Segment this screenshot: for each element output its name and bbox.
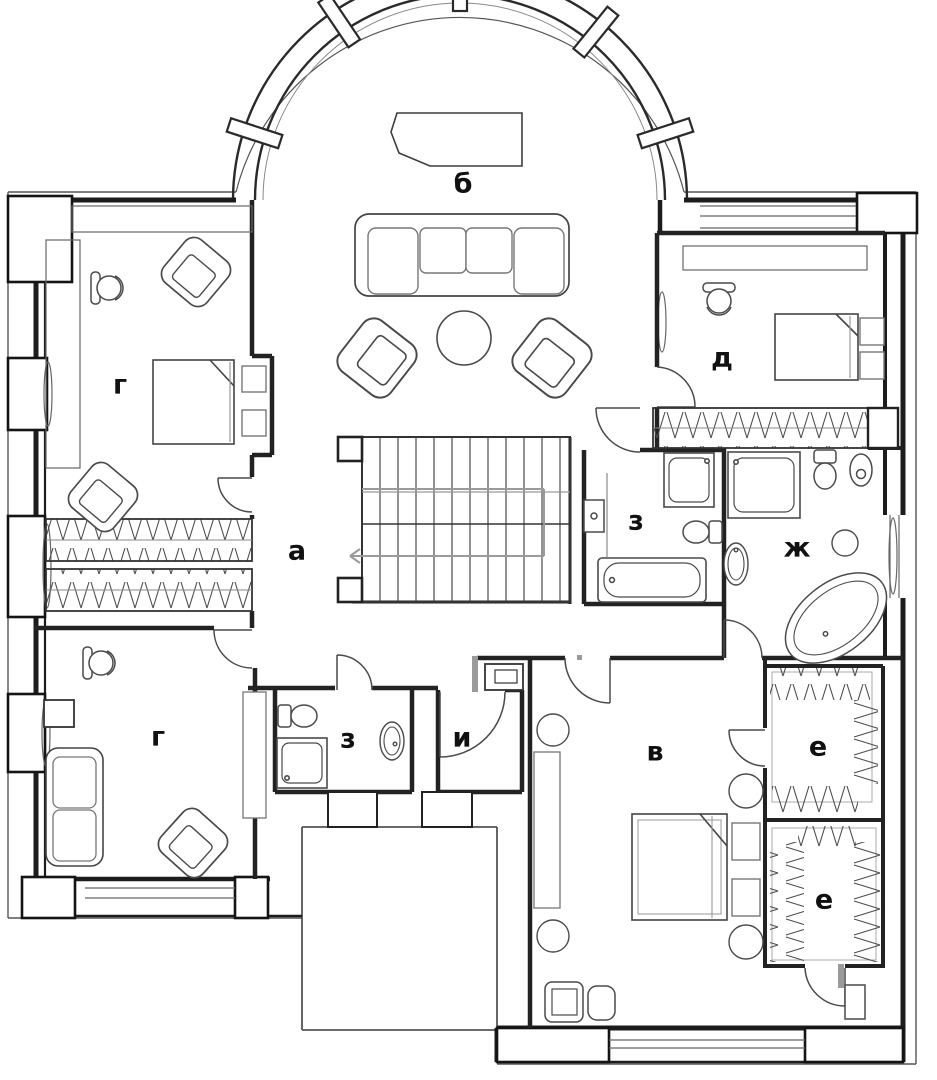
- door-utility: [440, 692, 505, 757]
- nightstand-icon: [732, 823, 760, 860]
- sofa-icon: [355, 214, 569, 296]
- armchair-icon: [153, 803, 232, 882]
- desk-chair-icon: [91, 272, 123, 304]
- dresser-icon: [534, 752, 560, 908]
- radiator-icon: [44, 700, 74, 727]
- room-label-bedroom-bl: г: [151, 724, 165, 751]
- nightstand-icon: [860, 318, 884, 345]
- stair-newel: [338, 578, 362, 602]
- desk-chair-icon: [703, 283, 735, 315]
- shower-icon: [728, 452, 800, 518]
- shower-icon: [664, 453, 714, 507]
- room-label-bath-bottom: з: [340, 726, 356, 753]
- bathtub-icon: [598, 558, 706, 602]
- nightstand-icon: [860, 352, 884, 379]
- side-table-icon: [729, 774, 763, 808]
- sink-icon: [380, 722, 404, 760]
- bedroom-bottom-left-furniture: [44, 647, 266, 883]
- desk-chair-icon: [83, 647, 115, 679]
- door-closet-top: [729, 730, 765, 766]
- room-label-closet-bottom: е: [815, 887, 833, 914]
- pedestal-sink-icon: [724, 543, 748, 585]
- nightstand-icon: [242, 366, 266, 392]
- armchair-icon: [332, 313, 422, 403]
- room-label-utility: и: [453, 725, 472, 752]
- bed-icon: [153, 360, 234, 444]
- stool-icon: [537, 714, 569, 746]
- side-table-icon: [729, 925, 763, 959]
- room-label-closet-top: е: [809, 734, 827, 761]
- door-bedroom-bottom-right: [565, 658, 610, 703]
- shower-icon: [277, 738, 327, 788]
- room-label-hallway: а: [288, 538, 306, 565]
- living-room-furniture: [332, 113, 597, 403]
- wardrobe-hatch-strip: [46, 519, 252, 561]
- armchair-icon: [507, 313, 597, 403]
- toilet-icon: [683, 521, 722, 543]
- bathroom-center-fixtures: [584, 453, 722, 602]
- toilet-icon: [814, 450, 836, 489]
- room-label-bath-right: ж: [784, 535, 811, 562]
- bathroom-right-fixtures: [724, 450, 903, 681]
- bed-icon: [632, 814, 727, 920]
- door-bedroom-top-right: [657, 367, 695, 407]
- room-label-living: б: [454, 171, 473, 198]
- nightstand-icon: [732, 879, 760, 916]
- floor-plan: б г а д з ж г з и в е е: [0, 0, 937, 1080]
- armchair-icon: [157, 233, 236, 312]
- bed-icon: [775, 314, 858, 380]
- cabinet-icon: [845, 985, 865, 1019]
- nightstand-icon: [242, 410, 266, 436]
- coffee-table-icon: [437, 311, 491, 365]
- toilet-icon: [278, 705, 317, 727]
- stair-direction-arrow: [350, 489, 544, 563]
- stool-icon: [832, 530, 858, 556]
- vanity-icon: [584, 500, 604, 532]
- bedroom-top-left-furniture: [46, 206, 266, 536]
- stool-icon: [537, 920, 569, 952]
- stair-newel: [338, 437, 362, 461]
- bidet-icon: [850, 454, 872, 486]
- door-bathroom-right: [724, 620, 762, 658]
- desk-icon: [683, 246, 867, 270]
- room-label-bedroom-tr: д: [711, 345, 733, 372]
- door-bedroom-top-left: [218, 478, 252, 512]
- sofa-icon: [46, 748, 103, 866]
- room-label-bedroom-tl: г: [113, 372, 127, 399]
- wardrobe-hatch-strip: [653, 408, 898, 448]
- cabinet-icon: [485, 664, 523, 690]
- door-bathroom-bottom: [337, 655, 372, 690]
- door-bathroom-center: [596, 408, 640, 452]
- cabinet-icon: [243, 692, 266, 818]
- utility-room-fixtures: [485, 664, 523, 690]
- room-label-bedroom-br: в: [646, 739, 663, 766]
- staircase: [338, 437, 570, 602]
- door-bedroom-bottom-left: [214, 630, 252, 668]
- wardrobe-hatch-strip: [46, 569, 252, 611]
- room-label-bath-center: з: [628, 508, 644, 535]
- grand-piano-icon: [391, 113, 522, 166]
- chair-and-ottoman-icon: [545, 982, 615, 1022]
- shelf-icon: [72, 206, 252, 232]
